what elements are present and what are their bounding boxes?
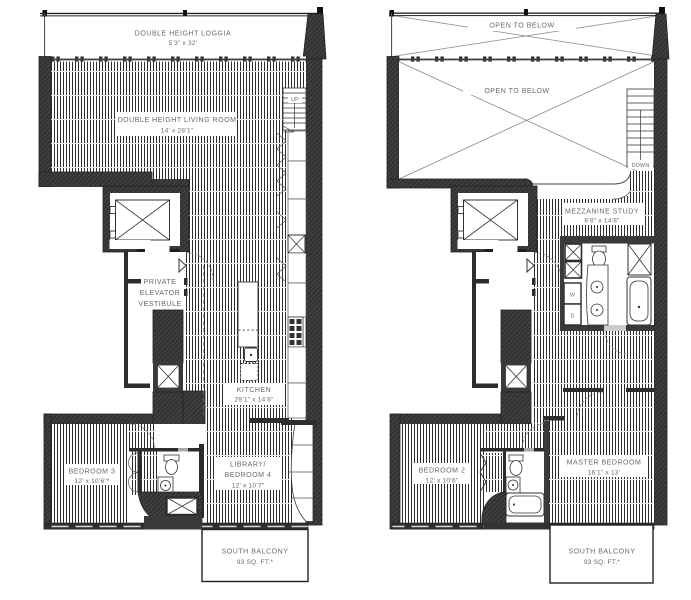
svg-text:BEDROOM 2: BEDROOM 2 xyxy=(419,468,466,475)
svg-text:14’ x 28’1”: 14’ x 28’1” xyxy=(161,128,194,135)
svg-text:29’1” x 14’6”: 29’1” x 14’6” xyxy=(234,397,273,404)
svg-text:MEZZANINE STUDY: MEZZANINE STUDY xyxy=(565,209,639,216)
svg-text:LIBRARY/: LIBRARY/ xyxy=(230,462,266,469)
svg-text:DOWN: DOWN xyxy=(632,163,650,169)
svg-text:16’1” x 13’: 16’1” x 13’ xyxy=(588,470,621,477)
svg-text:DOUBLE HEIGHT LIVING ROOM: DOUBLE HEIGHT LIVING ROOM xyxy=(118,117,237,124)
svg-text:UP: UP xyxy=(291,97,299,103)
svg-text:93 SQ. FT.*: 93 SQ. FT.* xyxy=(237,559,274,566)
svg-text:MASTER BEDROOM: MASTER BEDROOM xyxy=(567,460,642,467)
svg-text:ELEVATOR: ELEVATOR xyxy=(140,290,180,297)
svg-text:VESTIBULE: VESTIBULE xyxy=(138,301,181,308)
svg-text:12’ x 10’7”: 12’ x 10’7” xyxy=(232,483,265,490)
svg-text:BEDROOM 3: BEDROOM 3 xyxy=(69,469,116,476)
svg-text:12’ x 10’6”: 12’ x 10’6” xyxy=(426,478,459,485)
svg-text:KITCHEN: KITCHEN xyxy=(237,387,271,394)
svg-text:SOUTH BALCONY: SOUTH BALCONY xyxy=(222,549,289,556)
svg-text:SOUTH BALCONY: SOUTH BALCONY xyxy=(569,549,636,556)
svg-text:DOUBLE HEIGHT LOGGIA: DOUBLE HEIGHT LOGGIA xyxy=(135,31,231,38)
svg-text:5’3” x 32’: 5’3” x 32’ xyxy=(169,40,198,47)
svg-text:D: D xyxy=(570,314,574,320)
svg-text:12’ x 10’6”*: 12’ x 10’6”* xyxy=(74,478,109,485)
svg-text:PRIVATE: PRIVATE xyxy=(144,279,177,286)
svg-text:OPEN TO BELOW: OPEN TO BELOW xyxy=(484,88,549,95)
svg-text:OPEN TO BELOW: OPEN TO BELOW xyxy=(489,23,554,30)
svg-text:W: W xyxy=(570,293,576,299)
svg-text:6’8” x 14’8”: 6’8” x 14’8” xyxy=(584,218,619,225)
svg-text:BEDROOM 4: BEDROOM 4 xyxy=(225,472,272,479)
svg-text:93 SQ. FT.*: 93 SQ. FT.* xyxy=(584,559,621,566)
